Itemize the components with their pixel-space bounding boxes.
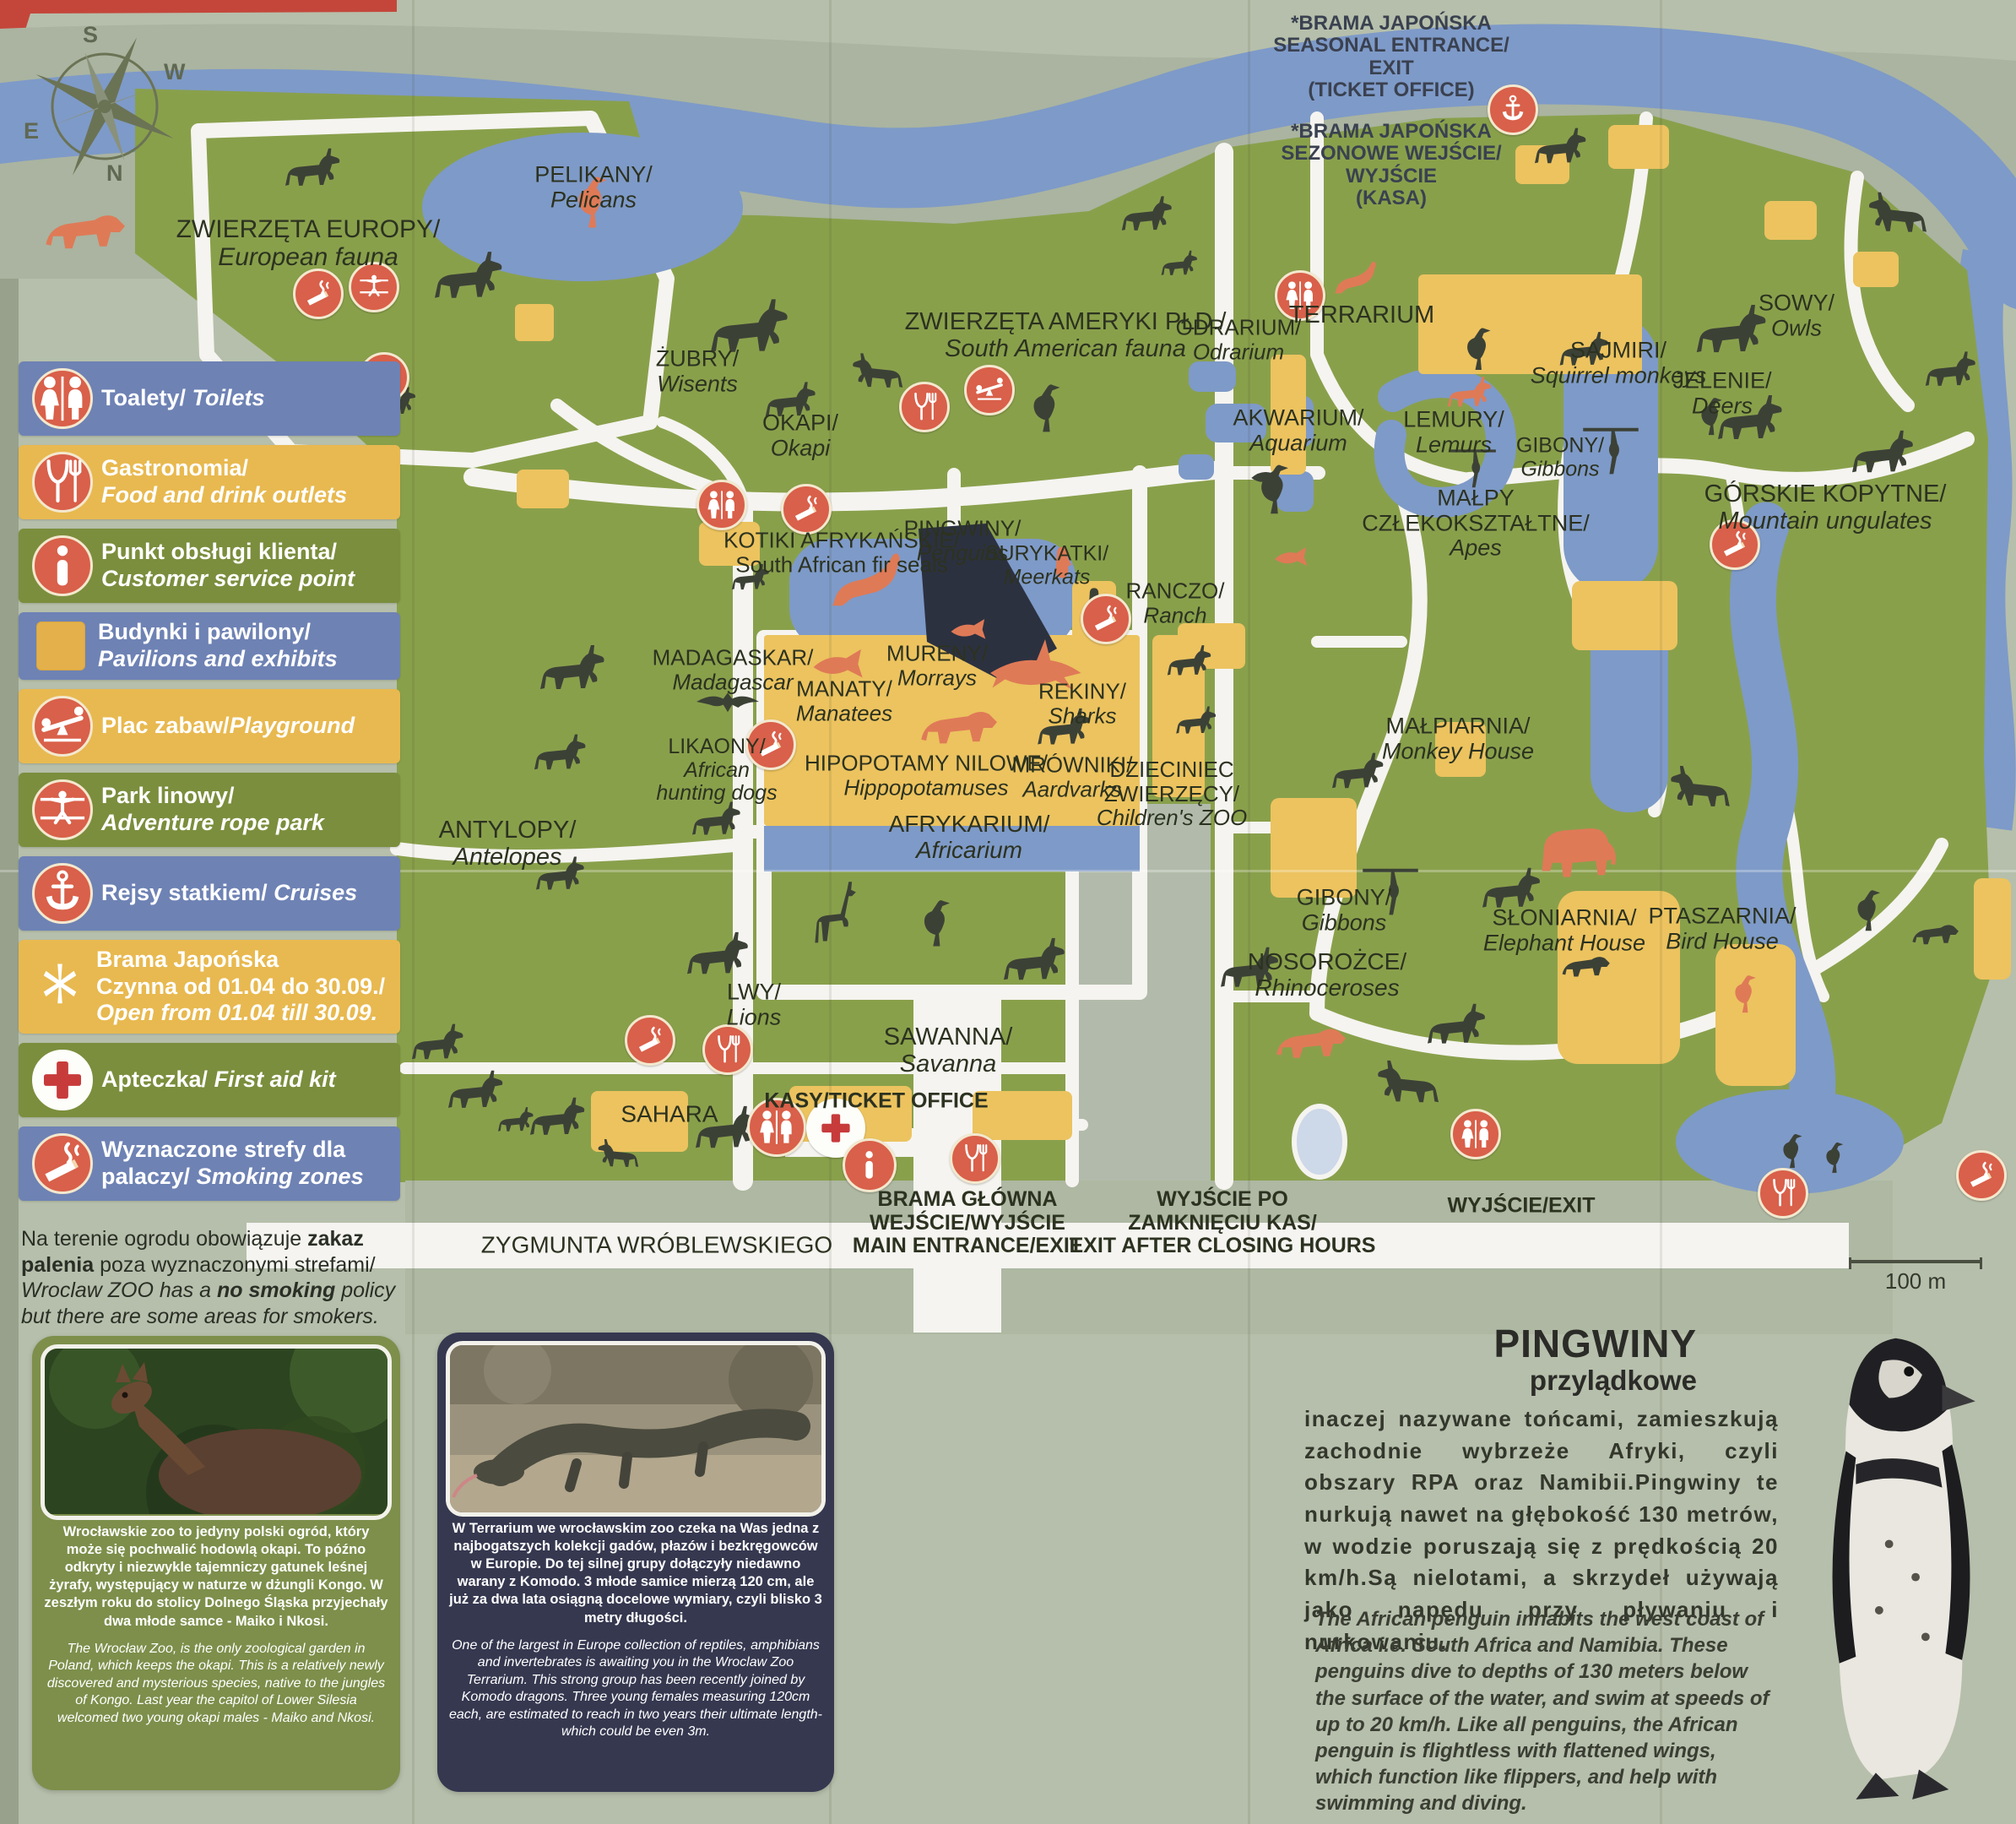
map-label-gibony: GIBONY/Gibbons: [1297, 885, 1392, 935]
map-label-ubry: ŻUBRY/Wisents: [656, 346, 740, 396]
zoo-map-page: S W E N ZWIERZĘTA EUROPY/European faunaP…: [0, 0, 2016, 1824]
smoking-icon: [625, 1015, 675, 1066]
quad-silhouette: [591, 1133, 644, 1186]
info-icon: [32, 535, 93, 596]
map-label-ranczo: RANCZO/Ranch: [1126, 578, 1225, 627]
map-label-dzieciniec: DZIECINIECZWIERZĘCY/Children's ZOO: [1097, 757, 1247, 830]
shark-silhouette: [984, 616, 1090, 722]
anchor-icon: [1488, 84, 1538, 135]
map-label-gibony: GIBONY/Gibbons: [1516, 435, 1604, 481]
map-label-sowy: SOWY/Owls: [1759, 290, 1834, 340]
quad-silhouette: [530, 850, 593, 913]
map-label-pingwiny: PINGWINY/Penguins: [904, 516, 1022, 564]
pavilion-icon: [36, 622, 85, 670]
seal-silhouette: [1328, 251, 1387, 310]
quad-silhouette: [680, 923, 760, 1003]
map-label-sawanna: SAWANNA/Savanna: [884, 1024, 1013, 1078]
elephant-silhouette: [1524, 798, 1625, 899]
legend-item-pavilions: Budynki i pawilony/Pavilions and exhibit…: [19, 612, 400, 680]
compass-letter: N: [106, 160, 123, 187]
fish-silhouette: [1269, 535, 1318, 584]
quad-silhouette: [1845, 421, 1925, 502]
smoking-icon: [32, 1133, 93, 1194]
map-label-ma-py: MAŁPYCZŁEKOKSZTAŁTNE/Apes: [1362, 486, 1590, 561]
ropepark-icon: [349, 262, 399, 312]
legend-item-playground: Plac zabaw/Playground: [19, 689, 400, 763]
legend-item-toilets: Toalety/ Toilets: [19, 361, 400, 436]
penguin-title: PINGWINY: [1435, 1324, 1697, 1363]
quad-silhouette: [528, 726, 595, 794]
fish-silhouette: [1246, 456, 1290, 500]
bird-silhouette: [1016, 377, 1075, 437]
penguin-silhouette: [1077, 586, 1111, 620]
quad-silhouette: [405, 1016, 473, 1083]
map-label-ma-piarnia: MAŁPIARNIA/Monkey House: [1382, 714, 1534, 763]
quad-silhouette: [426, 242, 515, 330]
gastronomy-icon: [702, 1024, 753, 1075]
legend-item-label: Plac zabaw/Playground: [101, 713, 355, 740]
map-label-kasy-ticket-office: KASY/TICKET OFFICE: [764, 1089, 988, 1113]
bird-silhouette: [1688, 393, 1734, 439]
primate-silhouette: [1446, 444, 1500, 498]
quad-silhouette: [701, 287, 802, 388]
firstaid-icon: [806, 1099, 865, 1158]
gastronomy-icon: [32, 452, 93, 513]
map-label-jelenie: JELENIE/Deers: [1672, 368, 1771, 418]
quad-silhouette: [1213, 938, 1289, 1014]
bird-silhouette: [1721, 970, 1768, 1017]
bird-silhouette: [1815, 1138, 1853, 1176]
map-label-likaony: LIKAONY/Africanhunting dogs: [656, 736, 777, 806]
legend-item-label: Punkt obsługi klienta/Customer service p…: [101, 539, 355, 593]
info-icon: [843, 1138, 897, 1192]
fish-silhouette: [805, 630, 879, 704]
anchor-icon: [32, 863, 93, 924]
quad-silhouette: [727, 558, 776, 607]
map-label-lwy: LWY/Lions: [727, 980, 782, 1029]
toilets-icon: [747, 1098, 806, 1157]
map-label-zygmunta-wr-blewskiego: ZYGMUNTA WRÓBLEWSKIEGO: [481, 1233, 832, 1259]
ropepark-icon: [32, 779, 93, 840]
smoking-icon: [1081, 594, 1131, 644]
map-label-terrarium: TERRARIUM: [1289, 302, 1434, 329]
smoking-icon: [293, 269, 344, 319]
scale-label: 100 m: [1849, 1268, 1982, 1295]
primate-silhouette: [1358, 862, 1423, 928]
legend-item-customer-service: Punkt obsługi klienta/Customer service p…: [19, 529, 400, 603]
bear-silhouette: [1555, 936, 1616, 997]
firstaid-icon: [32, 1050, 93, 1110]
compass-letter: E: [24, 118, 39, 144]
quad-silhouette: [1475, 859, 1551, 935]
okapi-text-pl: Wrocławskie zoo to jedyny polski ogród, …: [44, 1523, 388, 1631]
legend-item-label: Brama JapońskaCzynna od 01.04 do 30.09./…: [96, 947, 385, 1028]
map-label-g-rskie-kopytne: GÓRSKIE KOPYTNE/Mountain ungulates: [1704, 481, 1947, 535]
quad-silhouette: [1367, 1051, 1447, 1132]
okapi-photo: [41, 1344, 392, 1520]
map-label-afrykarium: AFRYKARIUM/Africarium: [889, 812, 1050, 864]
smoking-icon: [781, 484, 832, 535]
quad-silhouette: [442, 1062, 513, 1134]
map-label-zwierz-ta-ameryki-p-d: ZWIERZĘTA AMERYKI PŁD./South American fa…: [905, 309, 1227, 363]
bird-silhouette: [1770, 1129, 1813, 1171]
map-label-nosoro-ce: NOSOROŻCE/Rhinoceroses: [1248, 949, 1406, 1002]
penguin-text-en: The African penguin inhabits the west co…: [1315, 1606, 1778, 1817]
quad-silhouette: [996, 929, 1076, 1009]
bird-silhouette: [1243, 458, 1303, 518]
bear-silhouette: [1905, 905, 1965, 964]
bat-silhouette: [691, 670, 765, 745]
terrarium-text-pl: W Terrarium we wrocławskim zoo czeka na …: [449, 1520, 822, 1627]
penguin-subtitle: przylądkowe: [1435, 1366, 1697, 1394]
map-label-rekiny: REKINY/Sharks: [1038, 679, 1126, 727]
quad-silhouette: [686, 795, 750, 858]
smoking-icon: [745, 719, 796, 770]
legend-item-label: Budynki i pawilony/Pavilions and exhibit…: [98, 619, 338, 673]
gastronomy-icon: [950, 1133, 1000, 1184]
quad-silhouette: [532, 635, 616, 719]
quad-silhouette: [1660, 757, 1737, 834]
quad-silhouette: [1553, 324, 1618, 388]
legend-item-label: Rejsy statkiem/ Cruises: [101, 880, 357, 907]
quad-silhouette: [1115, 188, 1181, 254]
gastronomy-icon: [1758, 1168, 1808, 1219]
quad-silhouette: [1171, 700, 1223, 752]
map-label-sahara: SAHARA: [621, 1102, 718, 1128]
quad-silhouette: [494, 1102, 540, 1148]
quad-silhouette: [1919, 344, 1985, 410]
legend-item-smoking-zones: Wyznaczone strefy dlapalaczy/ Smoking zo…: [19, 1126, 400, 1201]
seal-silhouette: [821, 536, 919, 633]
bird-silhouette: [560, 170, 623, 233]
legend-item-rope-park: Park linowy/Adventure rope park: [19, 773, 400, 847]
map-label-odrarium: ODRARIUM/Odrarium: [1176, 315, 1302, 363]
legend-item-label: Park linowy/Adventure rope park: [101, 783, 324, 837]
map-label-okapi: OKAPI/Okapi: [762, 410, 838, 460]
legend-item-label: Toalety/ Toilets: [101, 385, 265, 412]
map-label-brama-japo-ska: *BRAMA JAPOŃSKASEZONOWE WEJŚCIE/WYJŚCIE(…: [1281, 121, 1501, 210]
fish-silhouette: [945, 605, 997, 658]
legend-item-gastronomy: Gastronomia/Food and drink outlets: [19, 445, 400, 519]
map-label-lemury: LEMURY/Lemurs: [1403, 407, 1504, 457]
map-label-antylopy: ANTYLOPY/Antelopes: [439, 817, 577, 871]
map-label-brama-japo-ska: *BRAMA JAPOŃSKASEASONAL ENTRANCE/EXIT(TI…: [1273, 13, 1509, 102]
bear-silhouette: [1266, 1000, 1355, 1088]
asterisk-icon: [32, 959, 88, 1015]
map-label-hipopotamy-nilowe: HIPOPOTAMY NILOWE/Hippopotamuses: [805, 751, 1048, 799]
playground-icon: [964, 365, 1015, 415]
map-label-akwarium: AKWARIUM/Aquarium: [1233, 405, 1364, 455]
quad-silhouette: [688, 1097, 768, 1177]
legend-item-cruises: Rejsy statkiem/ Cruises: [19, 856, 400, 931]
no-smoking-note: Na terenie ogrodu obowiązuje zakazpaleni…: [21, 1226, 401, 1329]
map-label-pelikany: PELIKANY/Pelicans: [534, 162, 653, 212]
quad-silhouette: [1325, 745, 1393, 812]
toilets-icon: [32, 368, 93, 429]
legend-item-label: Wyznaczone strefy dlapalaczy/ Smoking zo…: [101, 1137, 364, 1191]
quad-silhouette: [1031, 700, 1100, 769]
map-label-mr-wniki: MRÓWNIKI/Aardvarks: [1012, 752, 1133, 801]
map-label-mureny: MURENY/Morrays: [886, 641, 988, 689]
giraffe-silhouette: [798, 877, 878, 958]
terrarium-info-panel: W Terrarium we wrocławskim zoo czeka na …: [437, 1333, 834, 1792]
penguin-photo: [1780, 1307, 2012, 1814]
toilets-icon: [1275, 270, 1325, 321]
quad-silhouette: [843, 345, 909, 411]
legend-item-first-aid: Apteczka/ First aid kit: [19, 1043, 400, 1117]
bear-silhouette: [910, 680, 1007, 777]
map-label-wyj-cie-po: WYJŚCIE POZAMKNIĘCIU KAS/EXIT AFTER CLOS…: [1070, 1188, 1376, 1258]
quad-silhouette: [1442, 370, 1499, 427]
gastronomy-icon: [899, 382, 950, 432]
compass-letter: S: [83, 22, 98, 48]
quad-silhouette: [759, 374, 825, 440]
okapi-text-en: The Wrocław Zoo, is the only zoological …: [44, 1641, 388, 1727]
quad-silhouette: [1858, 183, 1934, 259]
bear-silhouette: [34, 182, 135, 283]
quad-silhouette: [1710, 385, 1794, 470]
penguin-silhouette: [1043, 545, 1081, 584]
quad-silhouette: [1528, 120, 1596, 187]
compass-rose: S W E N: [22, 24, 187, 188]
terrarium-text-en: One of the largest in Europe collection …: [449, 1637, 822, 1741]
quad-silhouette: [1420, 995, 1496, 1071]
quad-silhouette: [1688, 294, 1779, 385]
quad-silhouette: [1157, 245, 1204, 292]
map-label-s-oniarnia: SŁONIARNIA/Elephant House: [1483, 905, 1645, 955]
bird-silhouette: [1451, 322, 1504, 374]
okapi-info-panel: Wrocławskie zoo to jedyny polski ogród, …: [32, 1336, 400, 1790]
map-label-wyj-cie-exit: WYJŚCIE/EXIT: [1447, 1194, 1595, 1218]
bird-silhouette: [907, 893, 964, 951]
primate-silhouette: [1578, 421, 1644, 487]
scale-bar: 100 m: [1849, 1260, 1982, 1295]
legend-item-label: Gastronomia/Food and drink outlets: [101, 455, 347, 509]
legend-item-japanese-gate: Brama JapońskaCzynna od 01.04 do 30.09./…: [19, 940, 400, 1034]
map-label-kotiki-afryka-skie: KOTIKI AFRYKAŃSKIE/South African fir sea…: [723, 528, 960, 576]
compass-letter: W: [164, 59, 185, 85]
playground-icon: [32, 696, 93, 757]
toilets-icon: [696, 480, 747, 530]
map-label-surykatki: SURYKATKI/Meerkats: [985, 543, 1108, 589]
toilets-icon: [1450, 1109, 1501, 1159]
map-label-sajmiri: SAJMIRI/Squirrel monkeys: [1531, 338, 1707, 388]
smoking-icon: [1956, 1150, 2007, 1201]
quad-silhouette: [1162, 638, 1219, 696]
map-label-manaty: MANATY/Manatees: [796, 676, 892, 725]
quad-silhouette: [523, 1089, 595, 1161]
bird-silhouette: [1842, 884, 1893, 935]
legend-item-label: Apteczka/ First aid kit: [101, 1067, 336, 1094]
smoking-icon: [1710, 519, 1760, 570]
map-label-brama-g-wna: BRAMA GŁÓWNAWEJŚCIE/WYJŚCIEMAIN ENTRANCE…: [853, 1188, 1082, 1258]
quad-silhouette: [279, 140, 350, 212]
legend: Toalety/ ToiletsGastronomia/Food and dri…: [19, 361, 400, 1201]
map-label-zwierz-ta-europy: ZWIERZĘTA EUROPY/European fauna: [176, 215, 441, 271]
komodo-photo: [446, 1341, 826, 1517]
map-label-ptaszarnia: PTASZARNIA/Bird House: [1648, 904, 1796, 953]
map-label-madagaskar: MADAGASKAR/Madagascar: [653, 645, 814, 693]
